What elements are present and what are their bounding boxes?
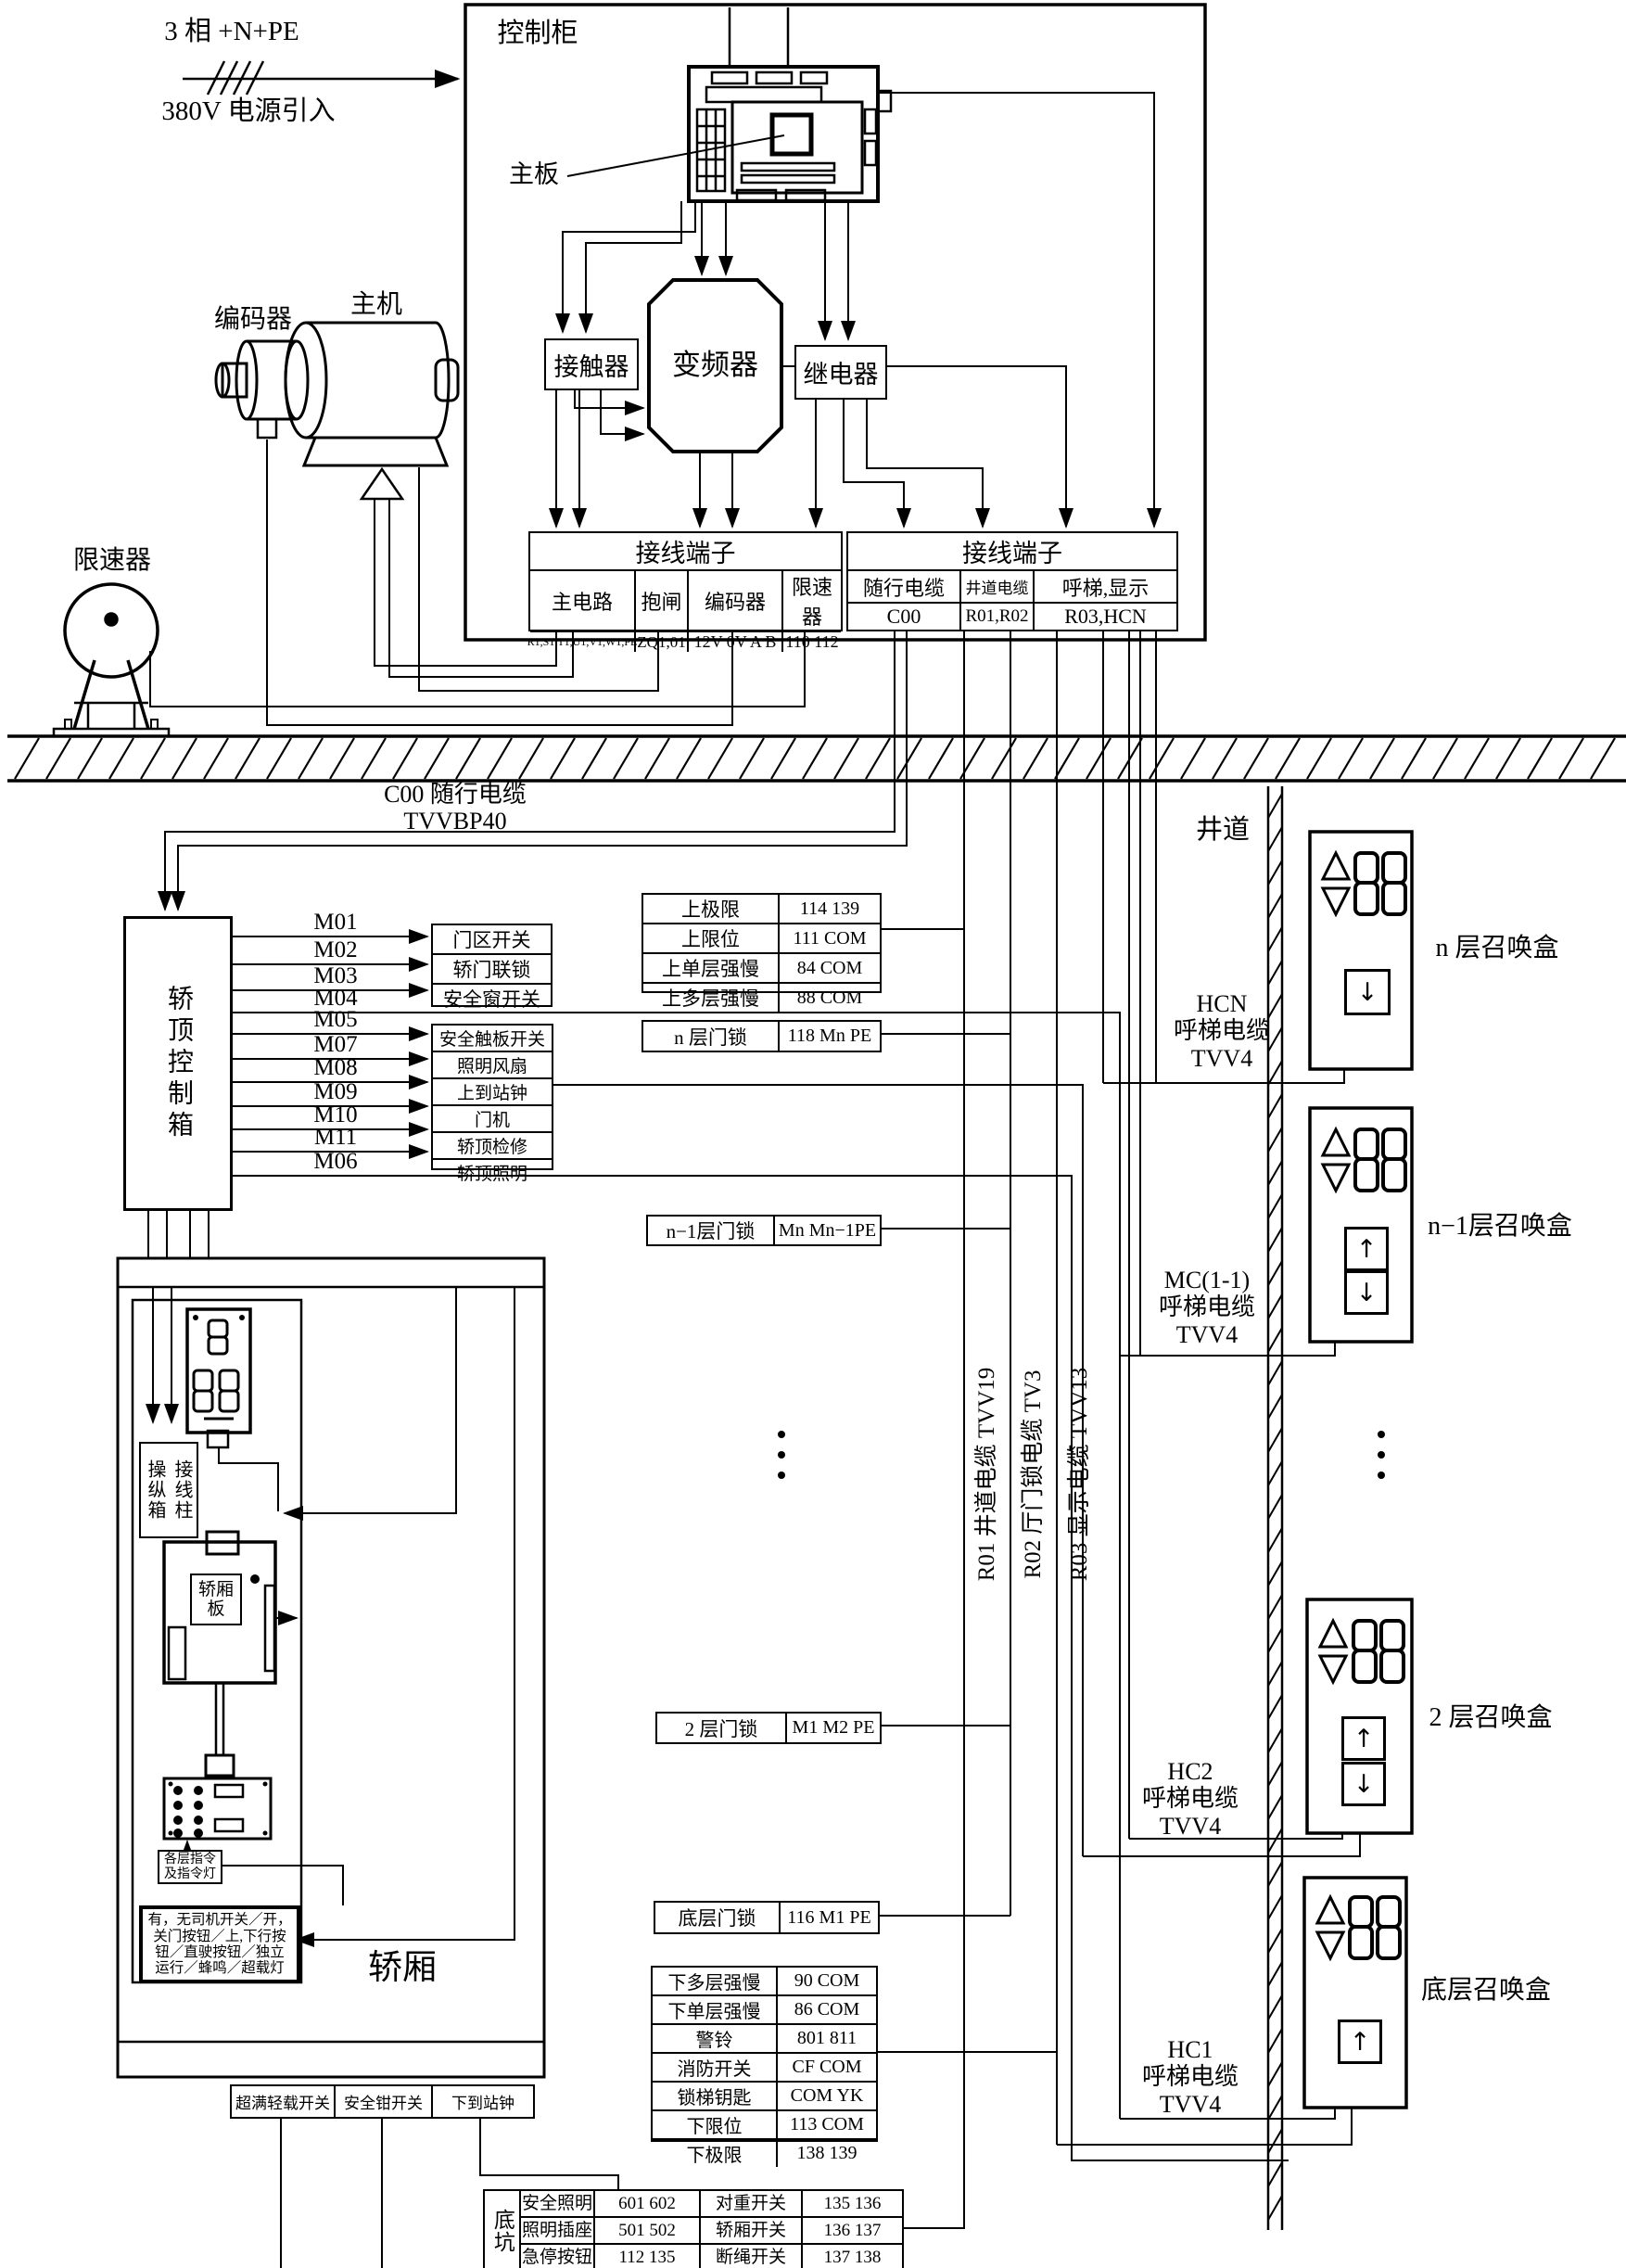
call-button-up[interactable]: ↑ — [1338, 2020, 1382, 2064]
cell: COM YK — [776, 2083, 876, 2109]
cell: 锁梯钥匙 — [653, 2083, 776, 2109]
call-box-label-2: 2 层召唤盒 — [1416, 1701, 1565, 1736]
call-button-down[interactable]: ↓ — [1341, 1762, 1386, 1806]
motor-label: 主机 — [341, 289, 412, 321]
safety-gear-switch-box: 安全钳开关 — [334, 2084, 433, 2119]
terminal-val: 12V 0V A B — [687, 632, 781, 652]
car-top-switch-group2: 安全触板开关 照明风扇 上到站钟 门机 轿顶检修 轿顶照明 — [431, 1024, 553, 1170]
car-top-control-box-label: 轿顶控制箱 — [159, 985, 197, 1142]
switch-row: 门机 — [433, 1104, 552, 1131]
cell: 下单层强慢 — [653, 1996, 776, 2023]
cell: 照明插座 — [521, 2218, 595, 2243]
down-arrival-gong-box: 下到站钟 — [431, 2084, 535, 2119]
cell: 上限位 — [643, 924, 778, 952]
cell: 下多层强慢 — [653, 1968, 776, 1994]
call-box-label-n: n 层召唤盒 — [1423, 931, 1571, 966]
floor-command-box: 各层指令 及指令灯 — [158, 1850, 222, 1884]
cell: 下极限 — [653, 2140, 776, 2167]
call-box-label-n1: n−1层召唤盒 — [1416, 1209, 1583, 1244]
terminal-val: R01,R02 — [959, 604, 1033, 630]
switch-row: 轿门联锁 — [433, 953, 551, 983]
governor-drawing — [54, 584, 169, 736]
cell: 135 136 — [803, 2191, 902, 2216]
cell: Mn Mn−1PE — [773, 1217, 880, 1244]
safety-gear-switch-label: 安全钳开关 — [344, 2090, 423, 2113]
call-button-up[interactable]: ↑ — [1344, 1227, 1389, 1271]
car-button-panel — [164, 1755, 271, 1839]
lower-switch-table: 下多层强慢90 COM 下单层强慢86 COM 警铃801 811 消防开关CF… — [651, 1966, 878, 2142]
terminal-col: 主电路 — [530, 571, 634, 631]
cell: 114 139 — [778, 895, 880, 923]
overload-switch-box: 超满轻载开关 — [230, 2084, 336, 2119]
contactor-label: 接触器 — [554, 347, 629, 383]
switch-row: 安全窗开关 — [433, 983, 551, 1013]
car-board-label-box: 轿厢 板 — [190, 1574, 242, 1625]
car-display-board — [187, 1309, 250, 1447]
cell: 137 138 — [803, 2245, 902, 2268]
cell: 底层门锁 — [655, 1903, 779, 1932]
m-line-label: M06 — [280, 1150, 391, 1174]
terminal-val: C00 — [848, 604, 959, 630]
call-region-wiring — [1057, 1069, 1360, 2145]
power-source-label: 380V 电源引入 — [137, 95, 360, 128]
mainboard-label: 主板 — [503, 159, 565, 189]
car-internal-wiring — [148, 1205, 514, 1940]
car-feature-box: 有，无司机开关／开， 关门按钮／上,下行按 钮／直驶按钮／独立 运行／蜂鸣／超载… — [139, 1905, 300, 1983]
terminal-col: 呼梯,显示 — [1033, 571, 1176, 602]
cell: 138 139 — [776, 2140, 876, 2167]
car-label: 轿厢 — [360, 1945, 445, 1992]
power-incoming-line — [183, 61, 458, 95]
call-box-n — [1310, 832, 1412, 1069]
panel-label-right: 接线柱 — [169, 1459, 196, 1521]
pit-label: 底坑 — [485, 2191, 521, 2268]
m-line-label: M05 — [280, 1008, 391, 1032]
call-cable-hc2: HC2 呼梯电缆 TVV4 — [1118, 1751, 1263, 1847]
call-button-up[interactable]: ↑ — [1341, 1716, 1386, 1761]
travel-cable-label: C00 随行电缆 TVVBP40 — [330, 792, 580, 823]
terminal-col: 随行电缆 — [848, 571, 959, 602]
riser-label-r02: R02 厅门锁电缆 TV3 — [1015, 1275, 1047, 1674]
cell: 112 135 — [595, 2245, 701, 2268]
m-line-label: M01 — [280, 911, 391, 935]
cell: 上多层强慢 — [643, 984, 778, 1012]
cell: 对重开关 — [701, 2191, 803, 2216]
cell: 601 602 — [595, 2191, 701, 2216]
call-button-down[interactable]: ↓ — [1344, 969, 1391, 1015]
cell: n−1层门锁 — [648, 1217, 773, 1244]
seven-seg-display — [1355, 853, 1405, 914]
encoder-label: 编码器 — [202, 304, 304, 336]
terminal-val: ZQ1,01 — [634, 632, 687, 652]
terminal-col: 限速器 — [781, 571, 841, 631]
terminal-val: R1,S1,T1,U1,V1,W1,PE — [530, 632, 634, 652]
cell: M1 M2 PE — [785, 1714, 880, 1742]
cell: 上极限 — [643, 895, 778, 923]
cell: 上单层强慢 — [643, 954, 778, 982]
cell: 136 137 — [803, 2218, 902, 2243]
switch-row: 安全触板开关 — [433, 1026, 552, 1051]
call-cable-hc1: HC1 呼梯电缆 TVV4 — [1118, 2029, 1263, 2125]
terminal-val: R03,HCN — [1033, 604, 1176, 630]
m-line-label: M08 — [280, 1056, 391, 1080]
pit-table: 底坑 安全照明 601 602 对重开关 135 136 照明插座 501 50… — [483, 2189, 904, 2268]
machine-room-floor — [7, 736, 1626, 781]
cell: 116 M1 PE — [779, 1903, 878, 1932]
upper-switch-table: 上极限114 139 上限位111 COM 上单层强慢84 COM 上多层强慢8… — [642, 893, 882, 993]
door-lock-bottom: 底层门锁116 M1 PE — [654, 1901, 880, 1934]
call-box-bottom — [1304, 1878, 1406, 2108]
m-line-label: M09 — [280, 1080, 391, 1104]
m-line-label: M02 — [280, 938, 391, 962]
terminal-title: 接线端子 — [848, 533, 1176, 569]
encoder-drawing — [216, 341, 308, 438]
switch-row: 轿顶检修 — [433, 1131, 552, 1158]
cell: 90 COM — [776, 1968, 876, 1994]
switch-row: 轿顶照明 — [433, 1158, 552, 1185]
down-arrival-gong-label: 下到站钟 — [451, 2090, 514, 2113]
cell: 113 COM — [776, 2111, 876, 2138]
cell: 111 COM — [778, 924, 880, 952]
riser-label-r01: R01 井道电缆 TVV19 — [969, 1275, 1000, 1674]
call-cable-hcn: HCN 呼梯电缆 TVV4 — [1150, 985, 1294, 1077]
seven-seg-display — [1350, 1897, 1400, 1958]
terminal-table-right: 接线端子 随行电缆 井道电缆 呼梯,显示 C00 R01,R02 R03,HCN — [846, 531, 1178, 631]
cell: 84 COM — [778, 954, 880, 982]
call-button-down[interactable]: ↓ — [1344, 1270, 1389, 1315]
cell: n 层门锁 — [643, 1022, 778, 1051]
elevator-wiring-diagram: 3 相 +N+PE 380V 电源引入 控制柜 主板 接触器 变频器 继电器 接… — [0, 0, 1626, 2268]
cell: 118 Mn PE — [778, 1022, 880, 1051]
door-lock-2: 2 层门锁M1 M2 PE — [655, 1712, 882, 1744]
overload-switch-label: 超满轻载开关 — [235, 2090, 330, 2113]
operating-panel-label-box: 操纵箱 接线柱 — [139, 1442, 198, 1538]
switch-row: 上到站钟 — [433, 1077, 552, 1104]
terminal-col: 编码器 — [687, 571, 781, 631]
cell: 急停按钮 — [521, 2245, 595, 2268]
cell: 88 COM — [778, 984, 880, 1012]
travelling-cable-c00 — [165, 628, 907, 910]
cell: 轿厢开关 — [701, 2218, 803, 2243]
terminal-val: 110 112 — [781, 632, 841, 652]
shaft-label: 井道 — [1181, 812, 1264, 847]
car-board-label: 轿厢 板 — [198, 1580, 234, 1620]
cell: 下限位 — [653, 2111, 776, 2138]
cell: 警铃 — [653, 2025, 776, 2052]
motor-drawing — [286, 323, 458, 465]
car-top-switch-group1: 门区开关 轿门联锁 安全窗开关 — [431, 924, 553, 1007]
terminal-title: 接线端子 — [530, 533, 841, 569]
call-cable-mc: MC(1-1) 呼梯电缆 TVV4 — [1133, 1259, 1281, 1356]
mainboard-drawing — [567, 7, 891, 201]
floor-command-label: 各层指令 及指令灯 — [164, 1853, 216, 1881]
cell: 501 502 — [595, 2218, 701, 2243]
motor-power-arrow — [362, 469, 402, 499]
panel-label-left: 操纵箱 — [142, 1459, 169, 1521]
m-line-label: M11 — [280, 1126, 391, 1150]
inverter-label: 变频器 — [649, 280, 781, 452]
seven-seg-display — [1355, 1129, 1405, 1191]
contactor-box: 接触器 — [544, 338, 639, 390]
seven-seg-display — [1353, 1621, 1404, 1682]
terminal-col: 抱闸 — [634, 571, 687, 631]
cell: 86 COM — [776, 1996, 876, 2023]
car-feature-text: 有，无司机开关／开， 关门按钮／上,下行按 钮／直驶按钮／独立 运行／蜂鸣／超载… — [147, 1912, 291, 1976]
cell: 消防开关 — [653, 2054, 776, 2081]
switch-row: 照明风扇 — [433, 1051, 552, 1077]
door-lock-n: n 层门锁118 Mn PE — [642, 1020, 882, 1052]
relay-label: 继电器 — [804, 354, 879, 390]
control-cabinet-title: 控制柜 — [482, 17, 593, 50]
cabinet-internal-wiring — [556, 93, 1154, 527]
power-phase-label: 3 相 +N+PE — [148, 15, 315, 48]
cell: 安全照明 — [521, 2191, 595, 2216]
riser-label-r03: R03 显示电缆 TVV13 — [1061, 1275, 1093, 1674]
relay-box: 继电器 — [794, 345, 887, 400]
cell: CF COM — [776, 2054, 876, 2081]
switch-row: 门区开关 — [433, 925, 551, 953]
car-top-control-box: 轿顶控制箱 — [123, 916, 233, 1211]
terminal-col: 井道电缆 — [959, 571, 1033, 602]
cell: 断绳开关 — [701, 2245, 803, 2268]
cell: 801 811 — [776, 2025, 876, 2052]
call-box-label-bottom: 底层召唤盒 — [1407, 1973, 1565, 2008]
door-lock-n1: n−1层门锁Mn Mn−1PE — [646, 1215, 882, 1246]
terminal-table-left: 接线端子 主电路 抱闸 编码器 限速器 R1,S1,T1,U1,V1,W1,PE… — [528, 531, 843, 631]
cell: 2 层门锁 — [657, 1714, 785, 1742]
governor-label: 限速器 — [61, 545, 163, 577]
m-line-label: M07 — [280, 1033, 391, 1057]
